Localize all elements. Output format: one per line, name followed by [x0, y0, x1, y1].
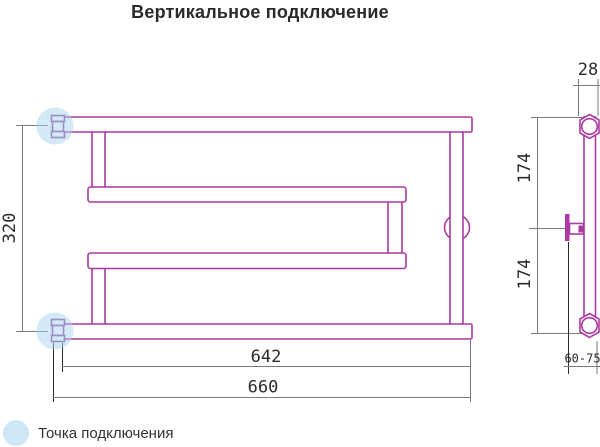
top-bar: [58, 117, 472, 132]
right-riser-pipe: [450, 126, 463, 326]
side-port-top: [582, 119, 598, 135]
dim-label-320: 320: [0, 213, 20, 244]
wall-bracket: [565, 214, 585, 241]
dimension-320: 320: [0, 125, 48, 332]
legend-label: Точка подключения: [38, 425, 173, 442]
left-bottom-stub: [92, 262, 105, 328]
third-bar: [88, 253, 406, 269]
connection-point-icon: [3, 420, 29, 446]
connection-point-bottom: [37, 313, 74, 350]
left-top-stub: [92, 128, 105, 193]
side-view: [565, 115, 599, 338]
right-mid-stub: [388, 197, 402, 259]
bottom-bar: [58, 324, 472, 339]
dimension-28: 28: [573, 60, 600, 116]
dim-label-174-bottom: 174: [515, 259, 535, 290]
second-bar: [88, 187, 406, 202]
dim-label-660: 660: [248, 378, 279, 398]
dim-label-642: 642: [251, 347, 282, 367]
drawing-canvas: Вертикальное подключение 320 642 660 28: [0, 0, 600, 447]
side-tube: [584, 117, 596, 333]
connection-point-top: [37, 108, 74, 145]
dim-label-60-75: 60-75: [564, 352, 600, 366]
technical-drawing: 320 642 660 28 174 174: [0, 0, 600, 447]
front-view: [52, 116, 473, 342]
side-port-bottom: [582, 318, 598, 334]
dimension-642-660: 642 660: [53, 340, 471, 402]
dim-label-174-top: 174: [515, 153, 535, 184]
legend: Точка подключения: [3, 420, 173, 446]
dim-label-28: 28: [578, 60, 598, 80]
